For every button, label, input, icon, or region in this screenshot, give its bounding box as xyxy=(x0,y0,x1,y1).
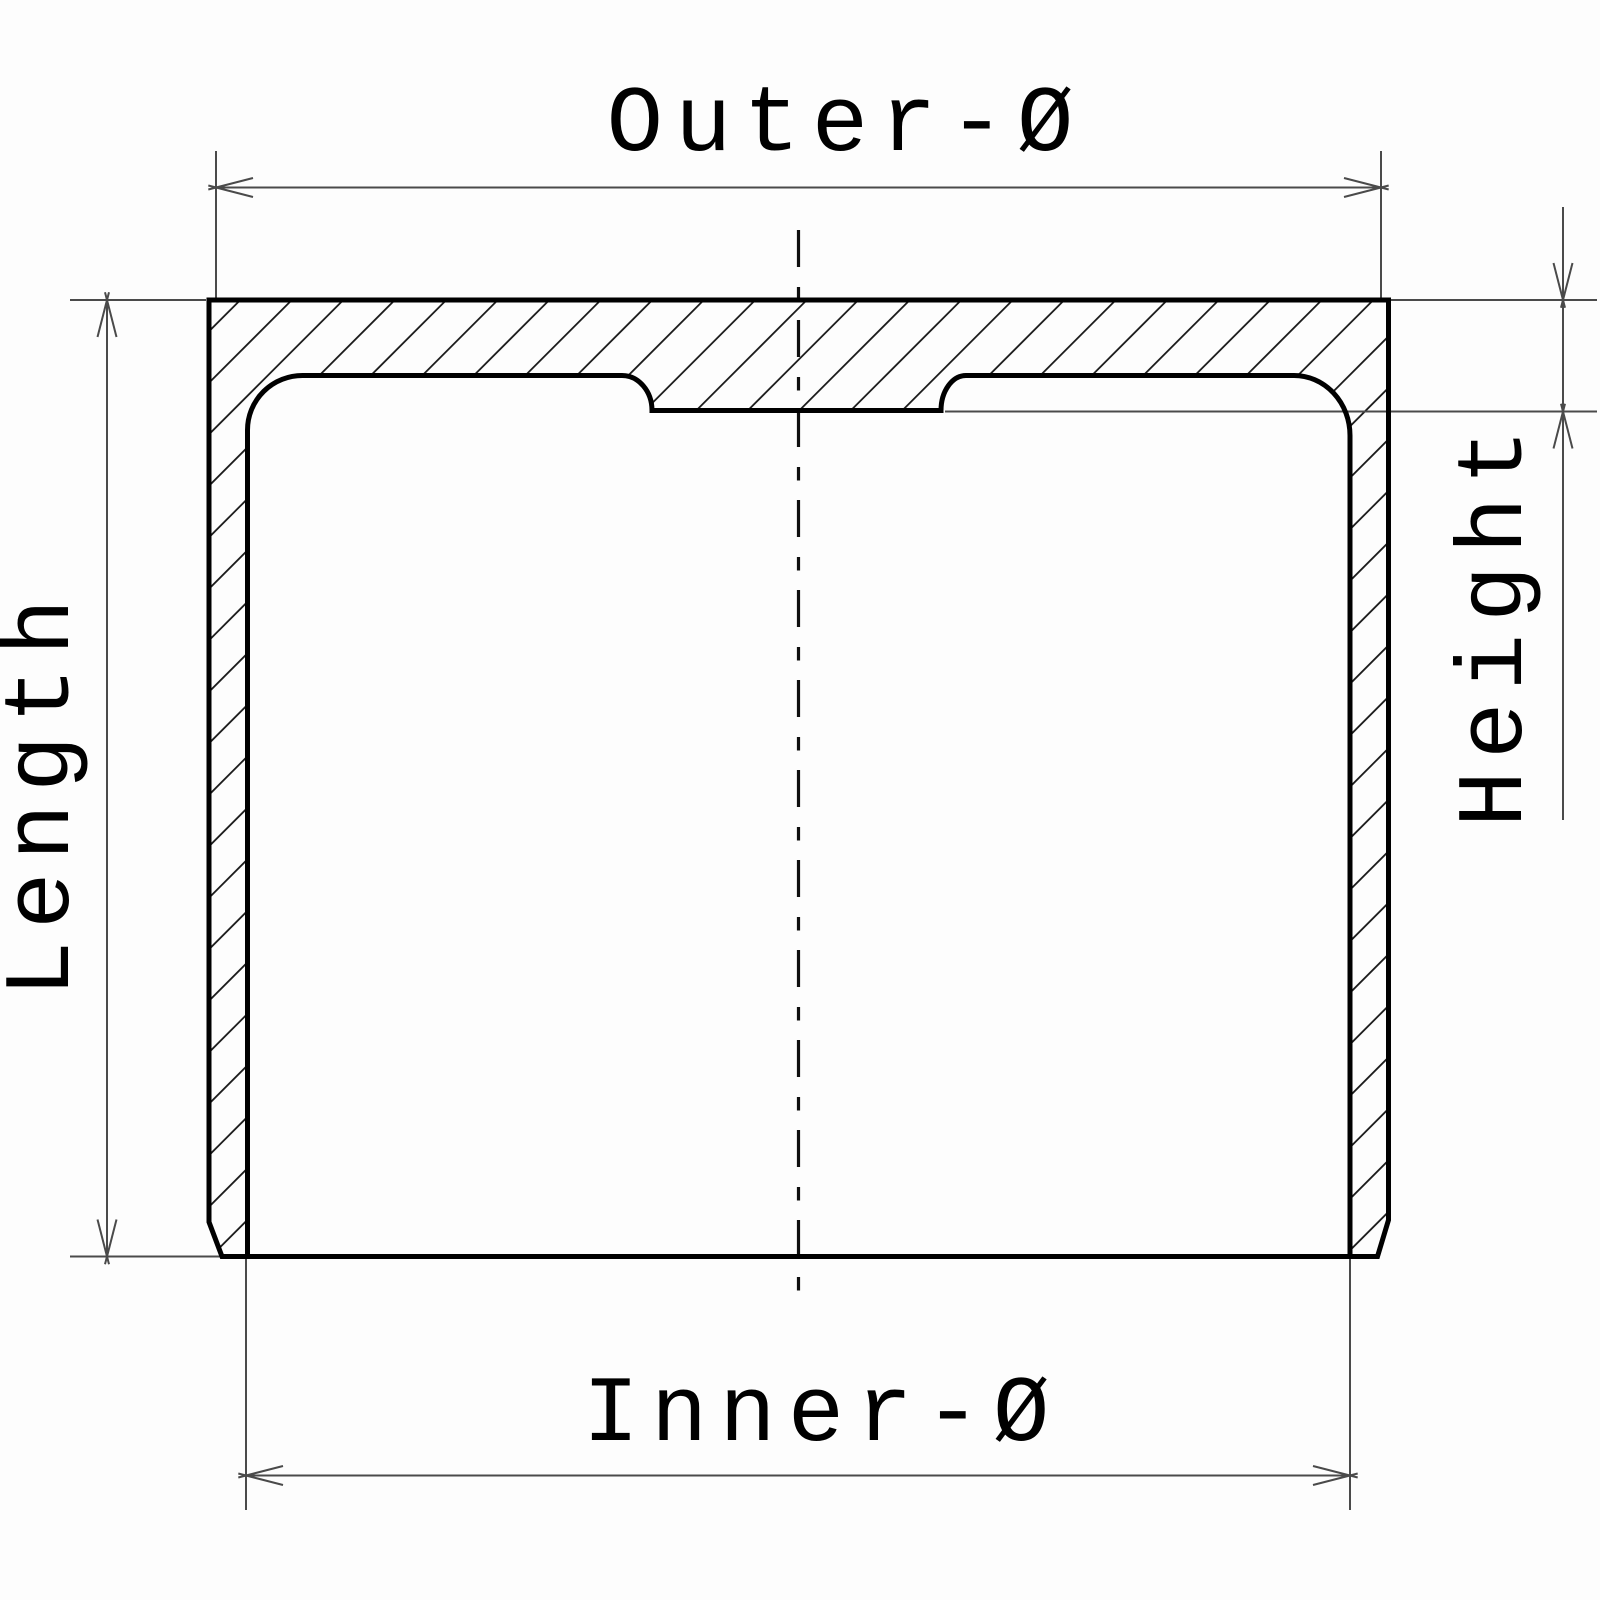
svg-text:Height: Height xyxy=(1444,417,1550,827)
svg-text:Outer-Ø: Outer-Ø xyxy=(607,73,1086,179)
svg-text:Inner-Ø: Inner-Ø xyxy=(583,1363,1062,1469)
svg-text:Length: Length xyxy=(0,587,97,997)
